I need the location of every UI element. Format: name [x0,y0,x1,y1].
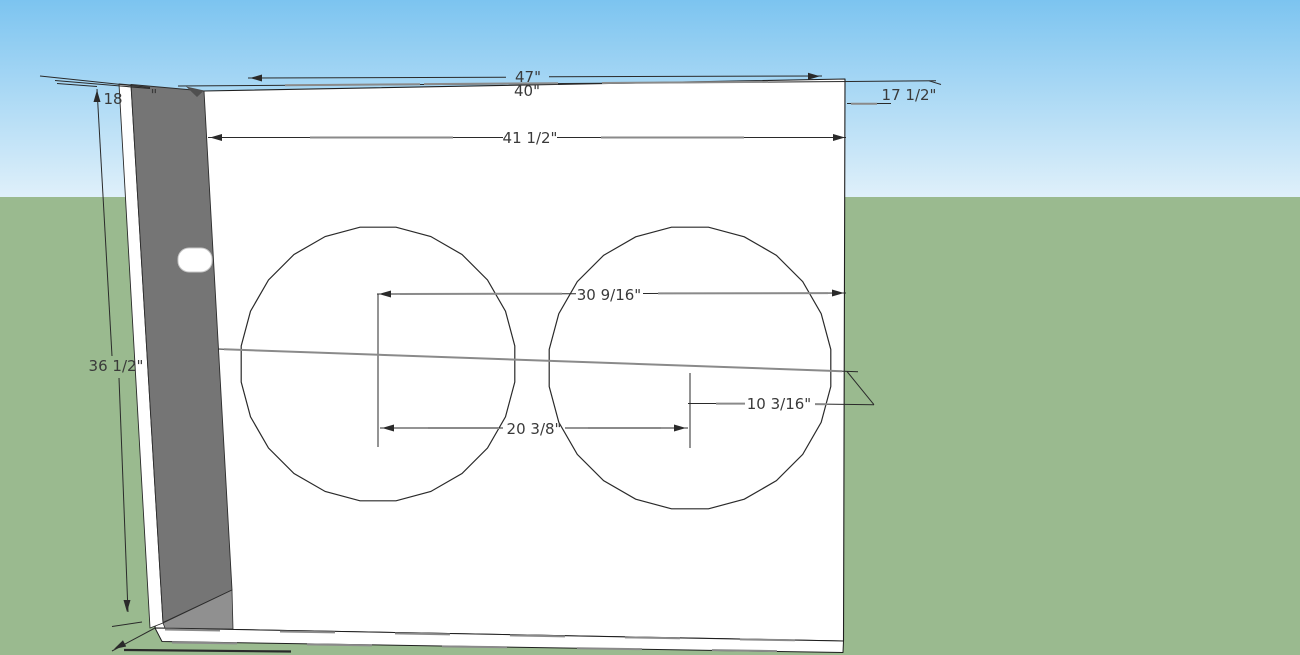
dim-17-1-2-group[interactable]: 17 1/2" [847,86,936,104]
port-peg[interactable] [178,248,212,272]
dim-20-3-8-label: 20 3/8" [507,420,562,438]
dim-18-label: 18 [103,90,122,108]
dim-40-label: 40" [514,82,540,100]
dim-41-1-2-label: 41 1/2" [503,129,558,147]
viewport-3d[interactable]: 47"40"17 1/2"41 1/2"36 1/2"18"30 9/16"20… [0,0,1300,655]
dim-36-1-2-label: 36 1/2" [89,357,144,375]
dim-10-3-16-label: 10 3/16" [747,395,811,413]
scene-svg: 47"40"17 1/2"41 1/2"36 1/2"18"30 9/16"20… [0,0,1300,655]
dim-18-label-suffix: " [151,86,158,104]
dim-30-9-16-label: 30 9/16" [577,286,641,304]
dim-17-1-2-label: 17 1/2" [882,86,937,104]
